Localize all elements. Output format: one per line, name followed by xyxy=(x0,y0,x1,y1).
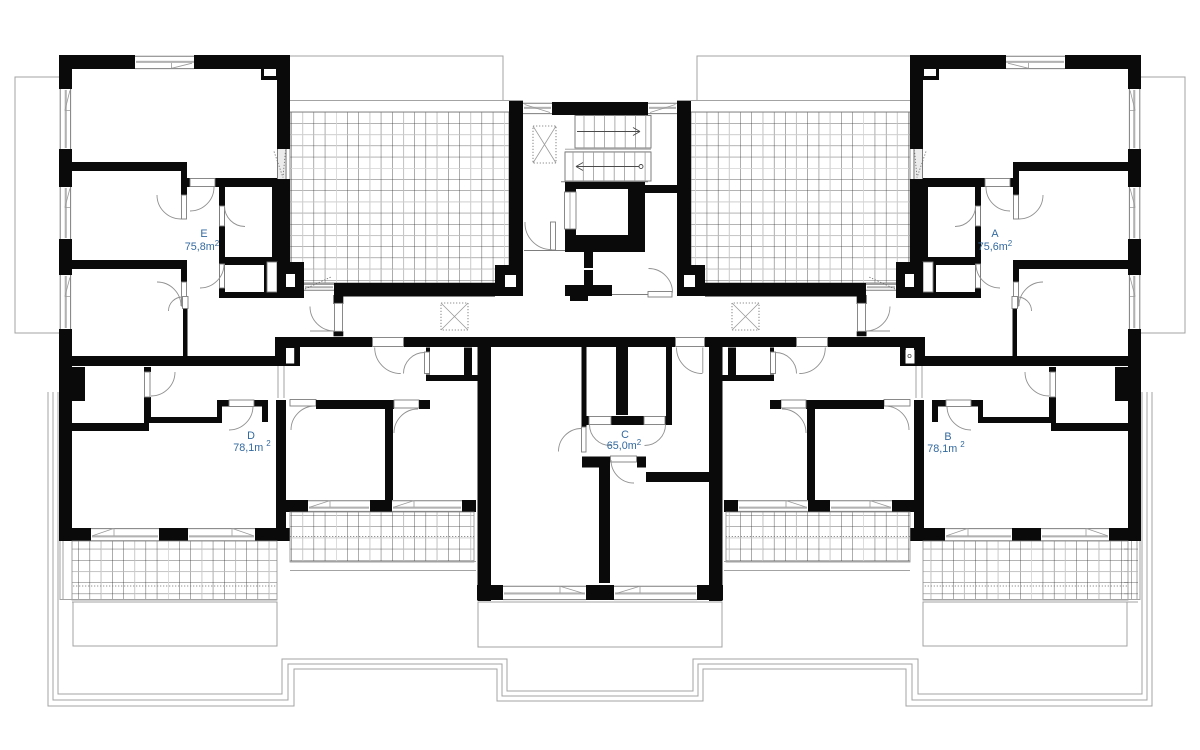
svg-text:78,1m 2: 78,1m 2 xyxy=(927,440,965,455)
svg-text:75,8m2: 75,8m2 xyxy=(185,239,220,253)
svg-text:D: D xyxy=(247,430,255,442)
svg-text:75,6m2: 75,6m2 xyxy=(978,239,1013,253)
svg-text:E: E xyxy=(200,228,207,240)
svg-text:78,1m 2: 78,1m 2 xyxy=(233,439,271,454)
svg-text:65,0m2: 65,0m2 xyxy=(607,438,642,452)
svg-text:A: A xyxy=(991,228,999,240)
svg-text:B: B xyxy=(944,431,951,443)
